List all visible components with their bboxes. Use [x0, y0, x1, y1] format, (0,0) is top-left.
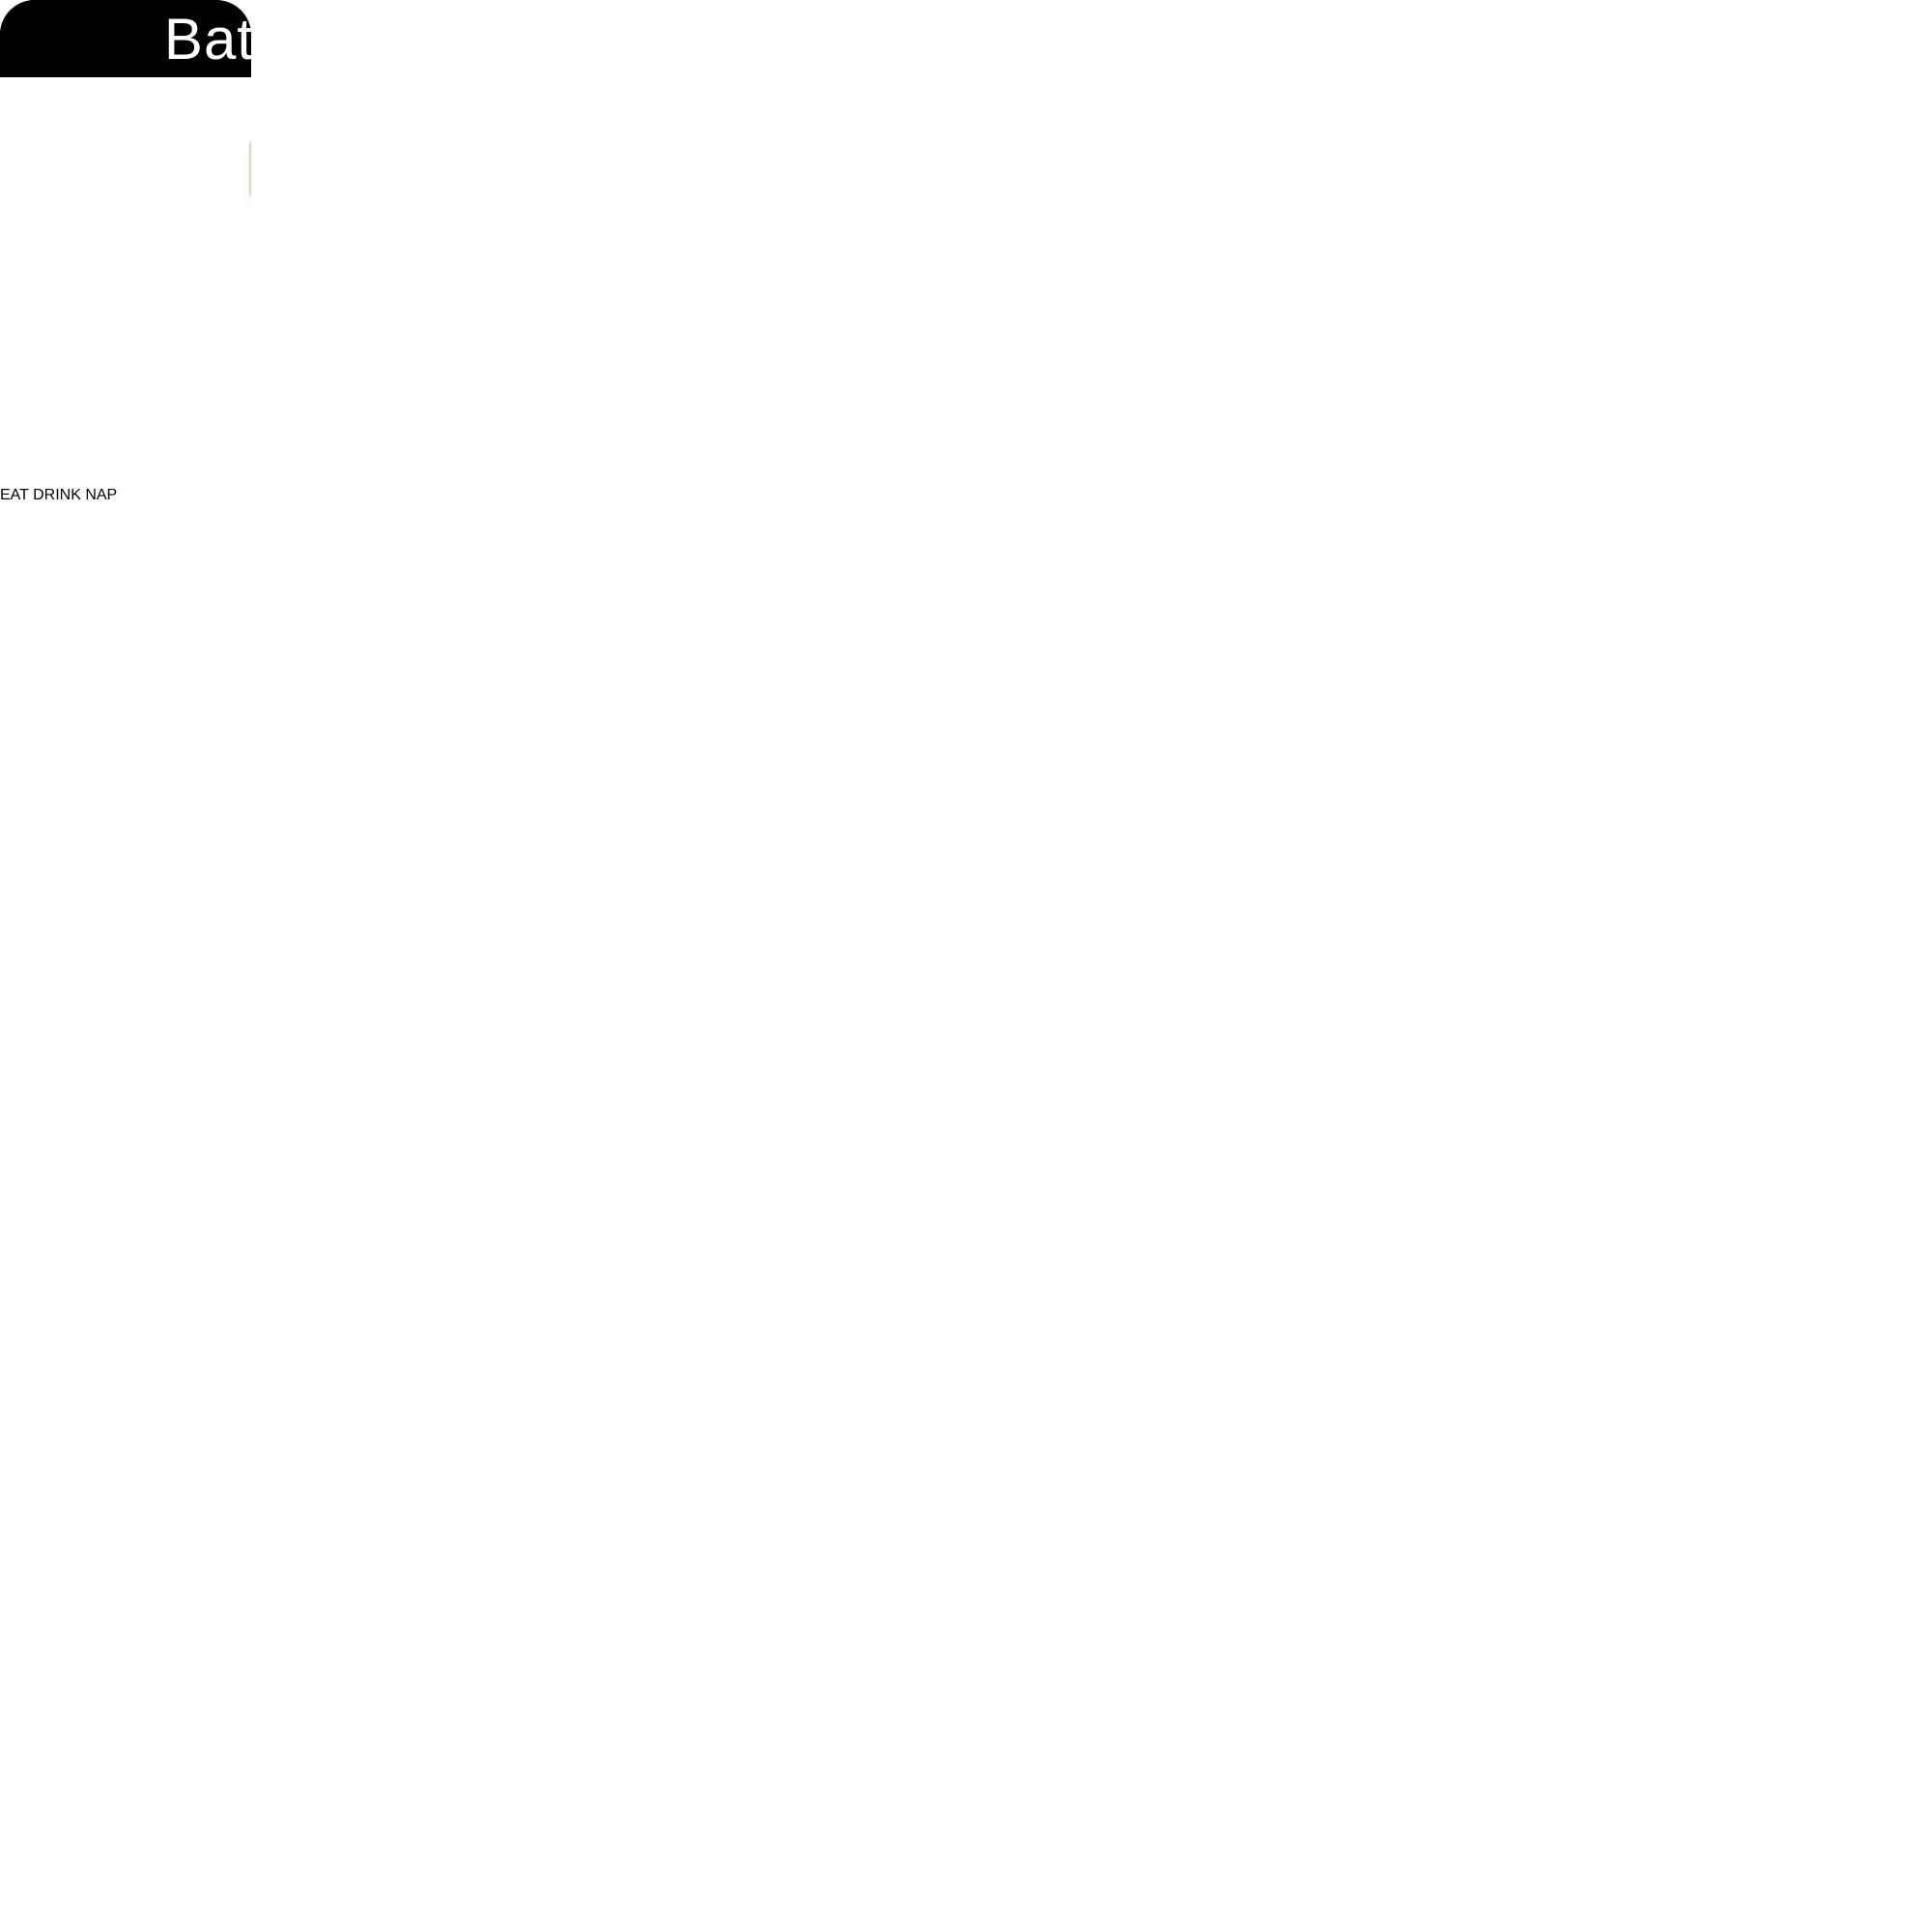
vanity-drawer-center-top — [0, 91, 150, 182]
vanity-cabinet — [0, 0, 251, 1047]
bathroom-photo: Bathroom — [0, 0, 251, 1047]
glass-shade — [249, 140, 251, 199]
bathroom-label-text: Bathroom — [164, 6, 251, 72]
vanity-drawer-center-mid — [0, 585, 150, 659]
vanity-door — [0, 891, 120, 1047]
vanity-door — [0, 429, 123, 585]
vanity-lamp-1 — [249, 111, 251, 203]
vanity-drawer-right — [0, 182, 247, 272]
vanity-door — [0, 734, 123, 891]
bathroom-label: Bathroom — [0, 0, 251, 77]
vanity-door — [0, 272, 123, 429]
vanity-drawer-center-bottom — [0, 659, 150, 734]
